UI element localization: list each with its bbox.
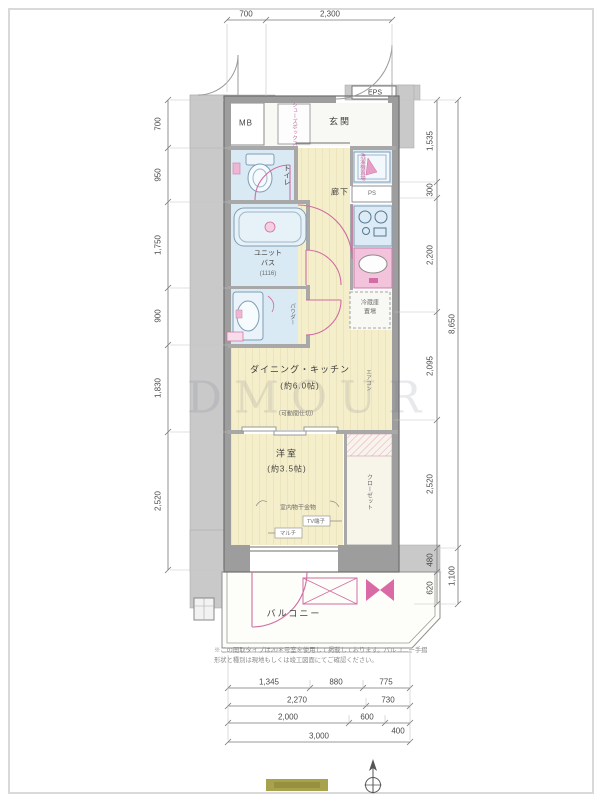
label-bedroom: 洋室 bbox=[276, 447, 298, 460]
dim-bottom-r3-1: 2,000 bbox=[278, 713, 298, 722]
dim-left-4: 900 bbox=[154, 309, 163, 322]
dim-bottom-total: 3,000 bbox=[309, 732, 329, 741]
dim-left-5: 1,830 bbox=[154, 378, 163, 398]
bathtub-fixture bbox=[234, 208, 306, 246]
label-partition-note: （可動間仕切） bbox=[275, 409, 317, 418]
label-ps: PS bbox=[368, 191, 376, 197]
dim-right-bottom: 1,100 bbox=[448, 566, 457, 586]
kitchen-sink bbox=[354, 248, 392, 288]
label-toilet: トイレ bbox=[281, 165, 291, 186]
dim-bottom-r1-2: 880 bbox=[329, 678, 342, 687]
dim-bottom-r2-2: 730 bbox=[381, 696, 394, 705]
dim-bottom-r2-1: 2,270 bbox=[287, 696, 307, 705]
dim-left-3: 1,750 bbox=[154, 235, 163, 255]
dim-bottom-r3-2: 600 bbox=[360, 713, 373, 722]
label-mb: MB bbox=[239, 119, 253, 128]
label-dk: ダイニング・キッチン bbox=[250, 363, 350, 376]
outdoor-fixture bbox=[194, 598, 214, 620]
floor-plan-page: DMOUR EPS MB 玄関 シューズボックス トイレ 廊下 洗濯機置場 PS… bbox=[0, 0, 600, 800]
dim-right-1: 1,535 bbox=[426, 131, 435, 151]
label-fridge-1: 冷蔵庫 bbox=[361, 298, 379, 307]
dim-bottom-r1-1: 1,345 bbox=[259, 678, 279, 687]
label-eps: EPS bbox=[368, 90, 382, 97]
footnote-line-1: ※この間取タイプは20＊号室を使用して掲載しております。バルコニー手摺 bbox=[214, 645, 427, 654]
label-multi-outlet: マルチ bbox=[280, 529, 297, 537]
dim-bottom-r1-3: 775 bbox=[379, 678, 392, 687]
kitchen-stove bbox=[354, 206, 392, 246]
dim-left-6: 2,520 bbox=[154, 491, 163, 511]
label-laundry-hardware: 室内物干金物 bbox=[280, 503, 316, 512]
dim-right-6: 480 bbox=[426, 553, 435, 566]
label-bedroom-size: (約3.5帖) bbox=[267, 464, 306, 475]
dim-right-total: 8,650 bbox=[448, 314, 457, 334]
label-washer: 洗濯機置場 bbox=[358, 153, 366, 181]
label-tv-outlet: TV端子 bbox=[307, 517, 325, 525]
logo-bar bbox=[266, 779, 328, 791]
footnote-line-2: 形状と種別は現地もしくは竣工図面にてご確認ください。 bbox=[214, 655, 378, 664]
dim-bottom-r3-3: 400 bbox=[391, 727, 404, 736]
balcony-outline bbox=[222, 572, 440, 652]
dim-right-7: 620 bbox=[426, 581, 435, 594]
label-fridge-2: 置場 bbox=[364, 307, 376, 316]
label-shoebox: シューズボックス bbox=[290, 102, 298, 146]
dim-right-5: 2,520 bbox=[426, 474, 435, 494]
label-closet: クローゼット bbox=[365, 474, 374, 510]
label-powder: パウダー bbox=[288, 303, 296, 325]
panel-box bbox=[227, 332, 243, 341]
dim-right-3: 2,200 bbox=[426, 245, 435, 265]
label-hall: 廊下 bbox=[331, 187, 349, 198]
dim-top-2: 2,300 bbox=[320, 10, 340, 19]
north-arrow-icon bbox=[365, 759, 382, 794]
label-bath-1: ユニット bbox=[254, 248, 282, 258]
dim-right-2: 300 bbox=[426, 183, 435, 196]
label-balcony: バルコニー bbox=[267, 607, 322, 620]
label-bath-2: バス bbox=[261, 258, 275, 268]
dim-right-4: 2,095 bbox=[426, 356, 435, 376]
label-bath-3: (1116) bbox=[260, 271, 276, 277]
dim-left-1: 700 bbox=[154, 117, 163, 130]
label-aircon: エアコン bbox=[364, 369, 372, 391]
dim-left-2: 950 bbox=[154, 168, 163, 181]
label-genkan: 玄関 bbox=[329, 115, 351, 128]
dim-top-1: 700 bbox=[239, 10, 252, 19]
label-dk-size: (約6.0帖) bbox=[280, 381, 319, 392]
